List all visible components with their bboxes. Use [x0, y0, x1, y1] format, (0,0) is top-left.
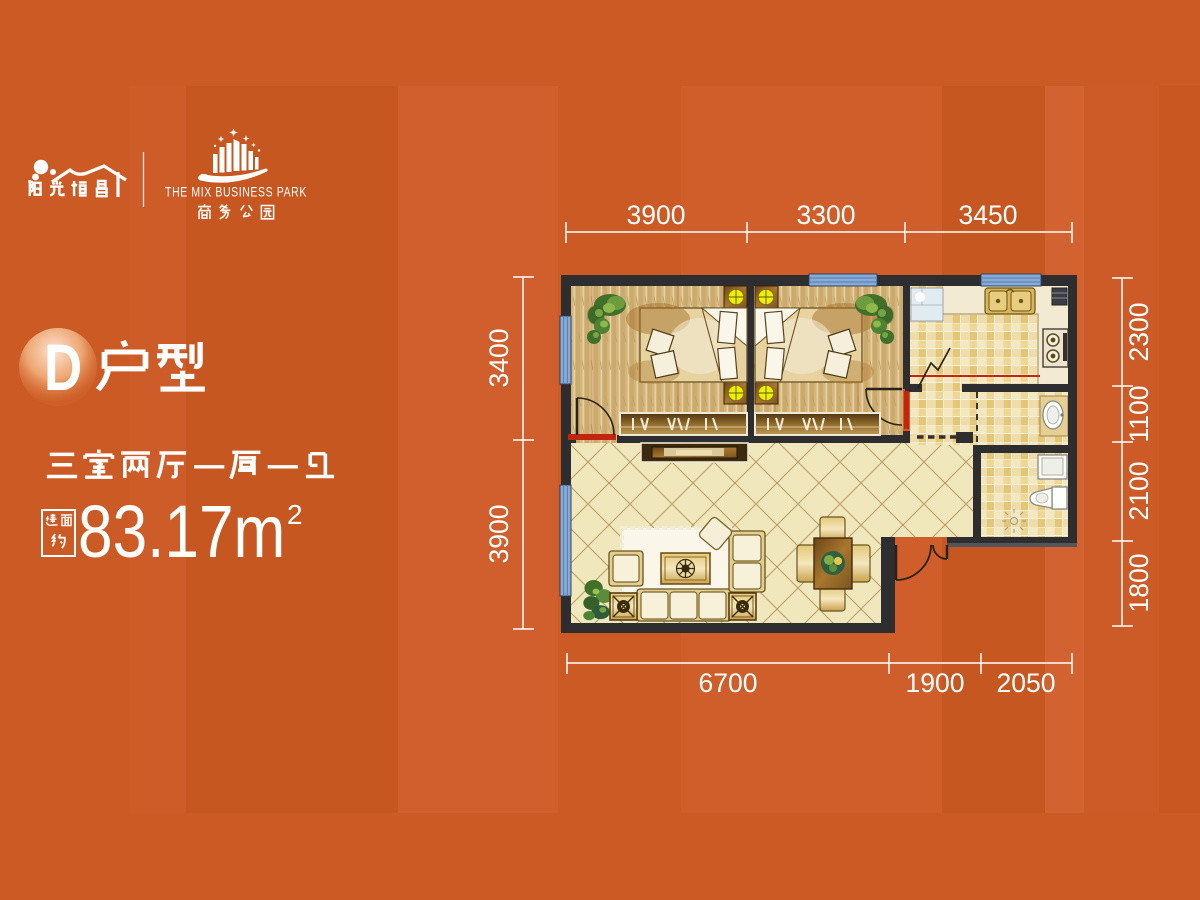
svg-text:3900: 3900 [627, 200, 686, 230]
svg-text:3450: 3450 [959, 200, 1018, 230]
svg-text:2300: 2300 [1124, 303, 1154, 362]
svg-text:3400: 3400 [484, 329, 514, 388]
svg-text:1900: 1900 [906, 668, 965, 698]
svg-text:3300: 3300 [797, 200, 856, 230]
svg-text:3900: 3900 [484, 505, 514, 564]
svg-text:THE MIX BUSINESS PARK: THE MIX BUSINESS PARK [165, 184, 307, 200]
svg-text:D: D [44, 330, 82, 404]
svg-text:2050: 2050 [997, 668, 1056, 698]
svg-text:1100: 1100 [1124, 386, 1154, 443]
svg-text:83.17m: 83.17m [78, 491, 285, 573]
svg-text:2: 2 [287, 499, 303, 530]
svg-text:2100: 2100 [1124, 462, 1154, 521]
svg-text:1800: 1800 [1124, 554, 1154, 613]
svg-text:6700: 6700 [699, 668, 758, 698]
